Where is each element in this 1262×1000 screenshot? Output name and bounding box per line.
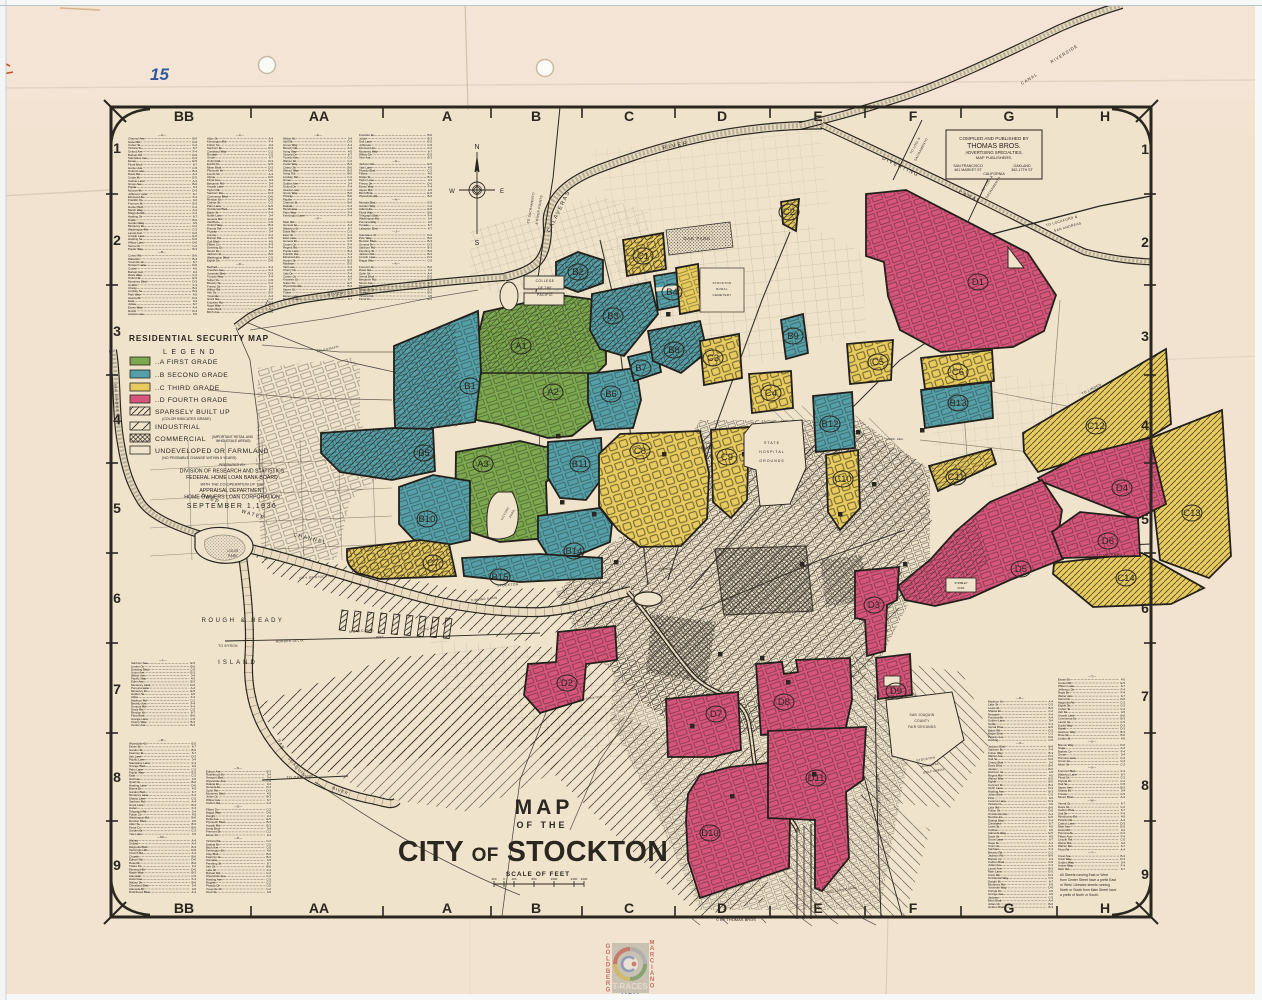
svg-text:HIGH: HIGH (702, 441, 711, 445)
svg-text:461 MARKET ST: 461 MARKET ST (954, 168, 982, 172)
svg-text:H: H (1100, 108, 1110, 124)
svg-text:Yale Lane: Yale Lane (129, 832, 142, 836)
svg-text:B13: B13 (950, 398, 967, 409)
svg-text:INDUSTRIAL: INDUSTRIAL (155, 424, 200, 431)
svg-text:MAP PUBLISHERS.: MAP PUBLISHERS. (976, 155, 1012, 160)
svg-text:4-5: 4-5 (267, 890, 272, 894)
svg-text:C-5: C-5 (427, 259, 432, 263)
svg-text:—P—: —P— (234, 836, 242, 840)
svg-text:5: 5 (113, 500, 121, 516)
svg-text:D5: D5 (1015, 564, 1027, 575)
svg-text:G: G (1004, 900, 1015, 916)
svg-text:LOUIS: LOUIS (227, 549, 238, 553)
svg-text:B12: B12 (822, 419, 839, 430)
svg-text:A-4: A-4 (192, 890, 197, 894)
svg-text:(COLOR INDICATES GRADE): (COLOR INDICATES GRADE) (162, 417, 211, 421)
svg-text:6-7: 6-7 (348, 297, 353, 301)
svg-text:4-5: 4-5 (269, 310, 274, 314)
svg-text:9: 9 (1141, 866, 1149, 882)
svg-text:North or South from Main Stree: North or South from Main Street have (1060, 888, 1116, 892)
svg-text:A: A (442, 108, 452, 124)
svg-text:Robinhood Blvd.: Robinhood Blvd. (129, 890, 150, 894)
svg-text:..D FOURTH GRADE: ..D FOURTH GRADE (155, 397, 228, 404)
svg-text:7: 7 (113, 681, 121, 697)
svg-text:Golden Blvd.: Golden Blvd. (988, 905, 1005, 909)
svg-text:PARK: PARK (228, 554, 238, 558)
svg-text:WHOLESALE AREAS): WHOLESALE AREAS) (216, 439, 250, 443)
svg-text:D11: D11 (808, 773, 825, 784)
svg-text:B14: B14 (566, 546, 583, 557)
svg-text:S: S (475, 240, 480, 247)
svg-text:D: D (717, 108, 727, 124)
svg-text:B10: B10 (419, 514, 436, 525)
svg-text:F: F (909, 108, 918, 124)
svg-text:..B SECOND GRADE: ..B SECOND GRADE (155, 372, 228, 379)
svg-text:8: 8 (113, 769, 121, 785)
svg-text:B-3: B-3 (193, 247, 198, 251)
svg-text:—F—: —F— (314, 217, 322, 221)
svg-text:C2: C2 (783, 207, 795, 218)
svg-text:2: 2 (1141, 234, 1149, 250)
svg-text:SCHOOL: SCHOOL (699, 446, 714, 450)
svg-text:CEMETERY: CEMETERY (712, 293, 731, 297)
svg-text:STRIBLEY: STRIBLEY (658, 567, 673, 571)
svg-text:G: G (606, 987, 611, 993)
svg-text:SEPTEMBER 1,1936: SEPTEMBER 1,1936 (187, 503, 278, 510)
svg-text:B-3: B-3 (428, 156, 433, 160)
svg-text:A-4: A-4 (1121, 847, 1126, 851)
svg-text:AA: AA (309, 108, 329, 124)
svg-text:HOME OWNERS LOAN CORPORATIO: HOME OWNERS LOAN CORPORATION (184, 495, 280, 501)
svg-text:4-5: 4-5 (193, 312, 198, 316)
svg-text:THOMAS BROS.: THOMAS BROS. (967, 143, 1021, 150)
svg-text:FEDERAL HOME LOAN BANK BOA: FEDERAL HOME LOAN BANK BOARD (186, 475, 278, 481)
svg-text:H: H (1100, 900, 1110, 916)
svg-text:—U—: —U— (1088, 740, 1096, 744)
svg-text:—K—: —K— (392, 262, 400, 266)
svg-text:APPRAISAL DEPARTMENT: APPRAISAL DEPARTMENT (199, 488, 265, 494)
svg-text:A3: A3 (477, 459, 489, 470)
svg-text:O: O (650, 983, 655, 989)
svg-text:1: 1 (113, 140, 121, 156)
svg-text:—S—: —S— (1016, 741, 1024, 745)
svg-text:5: 5 (1141, 511, 1149, 527)
svg-text:R: R (606, 981, 611, 987)
svg-text:D9: D9 (890, 686, 902, 697)
svg-text:STATE: STATE (764, 441, 780, 445)
svg-text:1600: 1600 (551, 877, 558, 881)
svg-text:ROUGH & READY: ROUGH & READY (202, 618, 285, 624)
svg-text:400: 400 (511, 877, 516, 881)
svg-text:—B—: —B— (158, 250, 166, 254)
svg-text:G: G (606, 944, 611, 950)
svg-text:E-5: E-5 (428, 297, 433, 301)
svg-text:B8: B8 (668, 345, 680, 356)
svg-text:A: A (650, 971, 655, 977)
svg-text:B7: B7 (635, 363, 647, 374)
svg-text:E: E (606, 975, 610, 981)
svg-text:D1: D1 (972, 277, 984, 288)
svg-text:C-2: C-2 (266, 801, 271, 805)
svg-text:—O—: —O— (234, 804, 242, 808)
svg-text:E: E (813, 108, 822, 124)
svg-text:Kensington Lane: Kensington Lane (283, 214, 305, 218)
svg-text:C-5: C-5 (1048, 738, 1053, 742)
svg-text:400: 400 (491, 877, 496, 881)
svg-text:..C THIRD GRADE: ..C THIRD GRADE (155, 385, 220, 392)
svg-text:—M—: —M— (158, 738, 167, 742)
svg-text:a prefix of North or South.: a prefix of North or South. (1060, 893, 1099, 897)
svg-text:RESIDENTIAL SECURITY MAP: RESIDENTIAL SECURITY MAP (129, 334, 269, 343)
svg-text:D4: D4 (1116, 483, 1128, 494)
svg-text:L: L (606, 956, 610, 962)
svg-text:3: 3 (113, 323, 121, 339)
svg-text:A1: A1 (515, 341, 527, 352)
svg-text:F-4: F-4 (348, 214, 353, 218)
svg-text:—C—: —C— (236, 133, 244, 137)
svg-text:4: 4 (1141, 417, 1149, 433)
svg-text:C: C (624, 108, 634, 124)
svg-text:OF THE: OF THE (517, 820, 568, 830)
svg-text:BB: BB (174, 900, 194, 916)
svg-text:G: G (1004, 108, 1015, 124)
svg-text:2: 2 (113, 232, 121, 248)
svg-text:B-3: B-3 (1049, 905, 1054, 909)
svg-text:—D—: —D— (236, 262, 244, 266)
svg-text:or West. Likewise streets runn: or West. Likewise streets running (1060, 883, 1110, 887)
svg-text:—E—: —E— (314, 133, 322, 137)
svg-text:B4: B4 (666, 287, 678, 298)
svg-text:Flora Rd.: Flora Rd. (1058, 847, 1070, 851)
svg-text:N: N (650, 977, 654, 983)
svg-text:—Y—: —Y— (1088, 851, 1096, 855)
svg-text:C3: C3 (707, 353, 719, 364)
svg-text:—N—: —N— (234, 766, 242, 770)
svg-text:Wyandotte Rd.: Wyandotte Rd. (359, 194, 378, 198)
svg-text:© BY THOMAS BROS: © BY THOMAS BROS (749, 915, 784, 919)
svg-text:Mount Blvd.: Mount Blvd. (1058, 795, 1073, 799)
svg-text:COUNTY: COUNTY (914, 719, 930, 723)
svg-text:D7: D7 (710, 709, 722, 720)
svg-text:B9: B9 (787, 331, 799, 342)
svg-text:C8: C8 (634, 446, 646, 457)
svg-text:C10: C10 (834, 474, 851, 485)
svg-text:C5: C5 (872, 357, 884, 368)
svg-text:—L—: —L— (159, 658, 167, 662)
svg-text:HOSPITAL: HOSPITAL (759, 450, 785, 454)
svg-text:B2: B2 (572, 267, 584, 278)
svg-text:O: O (606, 950, 611, 956)
svg-text:WITH THE CO-OPERATION OF THE: WITH THE CO-OPERATION OF THE (200, 483, 264, 487)
svg-text:from Center Street have a pref: from Center Street have a prefix East (1060, 878, 1116, 882)
svg-text:8: 8 (1141, 777, 1149, 793)
svg-text:B-3: B-3 (191, 723, 196, 727)
svg-text:4-5: 4-5 (1121, 736, 1126, 740)
svg-text:LEGEND: LEGEND (163, 349, 219, 356)
svg-text:3200: 3200 (581, 877, 588, 881)
svg-text:RURAL: RURAL (716, 287, 728, 291)
svg-text:—W—: —W— (1088, 798, 1097, 802)
svg-text:SPARSELY BUILT UP: SPARSELY BUILT UP (155, 409, 230, 416)
svg-text:W: W (449, 189, 455, 195)
svg-text:HWY: HWY (376, 635, 384, 639)
svg-text:D10: D10 (701, 828, 718, 839)
svg-text:E: E (500, 189, 504, 195)
svg-text:C7: C7 (427, 558, 439, 569)
svg-text:PACIFIC: PACIFIC (537, 293, 553, 297)
svg-text:—Mc—: —Mc— (157, 835, 167, 839)
svg-text:D6: D6 (1102, 536, 1114, 547)
svg-text:D-6: D-6 (268, 259, 273, 263)
svg-text:Eighth Dr.: Eighth Dr. (207, 259, 220, 263)
svg-text:D: D (606, 963, 611, 969)
svg-text:9: 9 (113, 857, 121, 873)
svg-text:6-7: 6-7 (1121, 867, 1126, 871)
svg-text:CITY OF STOCKTON: CITY OF STOCKTON (398, 836, 668, 868)
svg-text:6: 6 (1141, 600, 1149, 616)
svg-text:B6: B6 (605, 389, 617, 400)
svg-text:7: 7 (1141, 688, 1149, 704)
svg-text:—H—: —H— (392, 197, 400, 201)
svg-text:C9: C9 (721, 452, 733, 463)
svg-text:BB: BB (174, 108, 194, 124)
svg-text:OF THE: OF THE (538, 286, 552, 290)
svg-text:M: M (650, 940, 655, 946)
svg-text:CALIFORNIA: CALIFORNIA (983, 172, 1005, 176)
svg-text:D3: D3 (868, 600, 880, 611)
svg-text:1: 1 (1141, 141, 1149, 157)
svg-text:A: A (442, 900, 452, 916)
svg-text:15: 15 (150, 65, 169, 84)
svg-text:B1: B1 (464, 381, 476, 392)
svg-text:—A—: —A— (158, 133, 166, 137)
svg-text:6-7: 6-7 (428, 226, 433, 230)
svg-text:—R—: —R— (1016, 696, 1024, 700)
svg-text:362-17TH ST: 362-17TH ST (1011, 168, 1033, 172)
svg-text:F: F (909, 900, 918, 916)
svg-text:STOCKTON: STOCKTON (713, 281, 732, 285)
svg-text:UNDEVELOPED OR FARMLAND: UNDEVELOPED OR FARMLAND (155, 448, 269, 455)
svg-text:(NO PROBABLE CHANGE WITHIN 5 Y: (NO PROBABLE CHANGE WITHIN 5 YEARS) (162, 456, 236, 460)
svg-text:C1: C1 (637, 251, 649, 262)
svg-text:C6: C6 (952, 367, 964, 378)
svg-text:—G—: —G— (392, 159, 400, 163)
svg-text:C13: C13 (1183, 508, 1200, 519)
svg-text:D8: D8 (778, 697, 790, 708)
svg-text:3: 3 (1141, 328, 1149, 344)
svg-text:3-4: 3-4 (267, 833, 272, 837)
svg-text:..A FIRST GRADE: ..A FIRST GRADE (155, 359, 218, 366)
svg-text:C: C (624, 900, 634, 916)
svg-text:COMPILED AND PUBLISHED BY: COMPILED AND PUBLISHED BY (959, 136, 1028, 141)
svg-text:4-5: 4-5 (192, 832, 197, 836)
svg-text:—V—: —V— (1088, 766, 1096, 770)
svg-text:ISLAND: ISLAND (218, 660, 258, 666)
svg-text:C12: C12 (1087, 421, 1104, 432)
svg-text:TO BYRON: TO BYRON (218, 644, 238, 648)
svg-text:Miner St.: Miner St. (1058, 763, 1070, 767)
svg-text:D2: D2 (561, 678, 573, 689)
svg-text:T-RACES: T-RACES (612, 982, 648, 991)
svg-text:B3: B3 (607, 311, 619, 322)
svg-text:C-2: C-2 (1120, 763, 1125, 767)
svg-text:800: 800 (531, 877, 536, 881)
svg-text:OAK PARK: OAK PARK (683, 236, 711, 241)
svg-text:B5: B5 (418, 448, 430, 459)
svg-text:B: B (531, 108, 541, 124)
svg-text:B-6: B-6 (428, 194, 433, 198)
svg-text:6: 6 (113, 590, 121, 606)
svg-text:AMER. LEG.: AMER. LEG. (886, 437, 904, 441)
svg-text:A-4: A-4 (1121, 795, 1126, 799)
svg-text:All Streets running East or We: All Streets running East or West (1060, 873, 1108, 877)
svg-text:DIVISION OF RESEARCH AND S: DIVISION OF RESEARCH AND STATISTICS (180, 469, 285, 475)
svg-text:D: D (717, 900, 727, 916)
svg-text:C: C (650, 959, 655, 965)
svg-text:B11: B11 (572, 459, 588, 470)
svg-text:N: N (474, 144, 479, 151)
svg-text:B15: B15 (492, 572, 509, 583)
svg-text:STRIBLEY: STRIBLEY (954, 581, 968, 585)
svg-text:R: R (650, 952, 655, 958)
svg-text:C11: C11 (948, 472, 965, 483)
svg-text:SAN JOAQUIN: SAN JOAQUIN (910, 713, 935, 717)
svg-text:COLLEGE: COLLEGE (536, 279, 555, 283)
svg-text:PARK: PARK (958, 586, 965, 590)
svg-text:Center Ave.: Center Ave. (131, 723, 146, 727)
svg-text:PREPARED BY: PREPARED BY (219, 463, 246, 467)
svg-text:E: E (813, 900, 822, 916)
svg-text:B: B (531, 900, 541, 916)
svg-text:C14: C14 (1117, 573, 1134, 584)
svg-text:GROUNDS: GROUNDS (759, 459, 784, 463)
svg-text:MAP: MAP (515, 796, 574, 819)
svg-text:—J—: —J— (392, 230, 400, 234)
svg-text:A2: A2 (547, 387, 559, 398)
svg-text:C4: C4 (765, 388, 777, 399)
svg-text:Floral Dr.: Floral Dr. (359, 297, 371, 301)
svg-text:A: A (650, 946, 655, 952)
svg-text:COMMERCIAL: COMMERCIAL (155, 436, 206, 443)
svg-text:FAIR GROUNDS: FAIR GROUNDS (908, 725, 936, 729)
svg-text:AA: AA (309, 900, 329, 916)
svg-text:Linden St.: Linden St. (1058, 736, 1071, 740)
svg-text:—T—: —T— (1088, 674, 1096, 678)
svg-text:2400: 2400 (571, 877, 578, 881)
svg-text:B: B (606, 969, 611, 975)
